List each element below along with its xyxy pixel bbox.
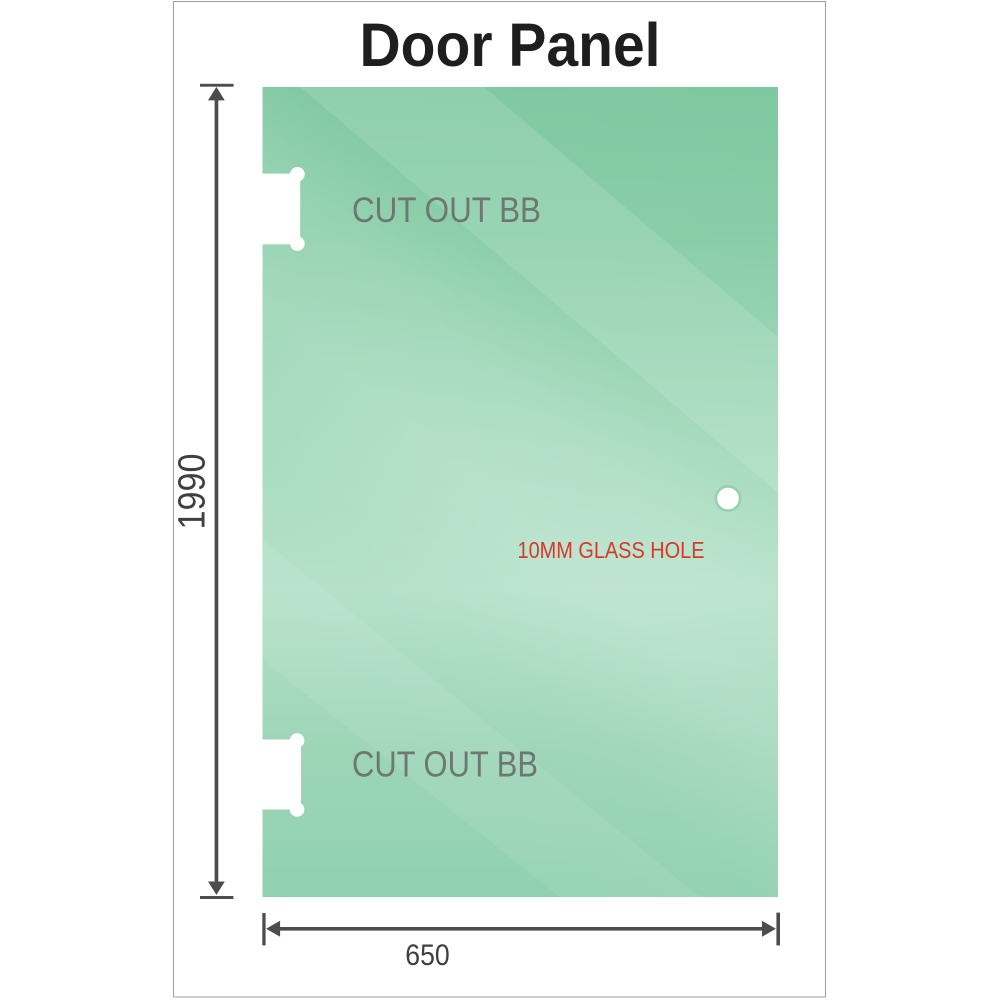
svg-text:650: 650	[405, 939, 450, 972]
svg-text:Door Panel: Door Panel	[360, 11, 661, 79]
svg-text:1990: 1990	[172, 454, 214, 530]
svg-text:10MM GLASS HOLE: 10MM GLASS HOLE	[518, 537, 705, 563]
svg-text:CUT OUT BB: CUT OUT BB	[352, 191, 541, 230]
svg-text:CUT OUT BB: CUT OUT BB	[352, 744, 538, 785]
